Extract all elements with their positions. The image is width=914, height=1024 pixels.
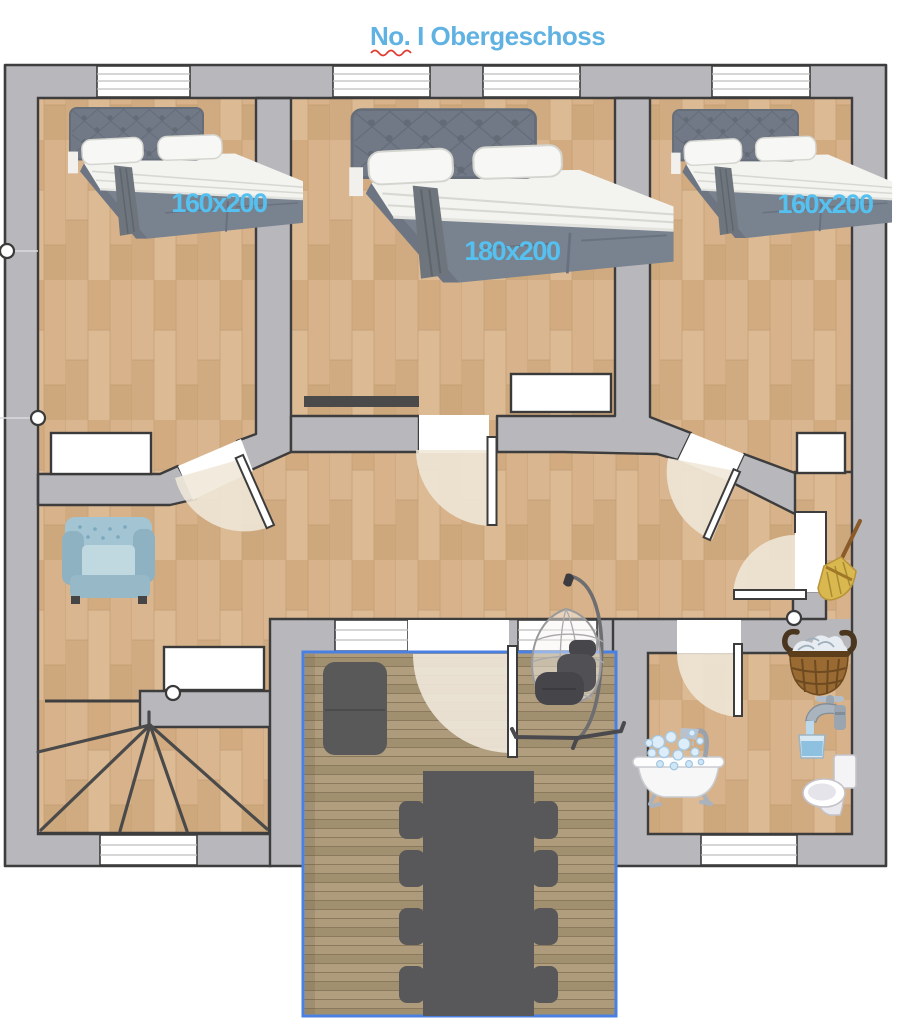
svg-text:160x200: 160x200	[171, 188, 267, 218]
svg-text:No. I Obergeschoss: No. I Obergeschoss	[370, 21, 605, 51]
svg-text:180x200: 180x200	[464, 236, 560, 266]
svg-text:160x200: 160x200	[777, 189, 873, 219]
